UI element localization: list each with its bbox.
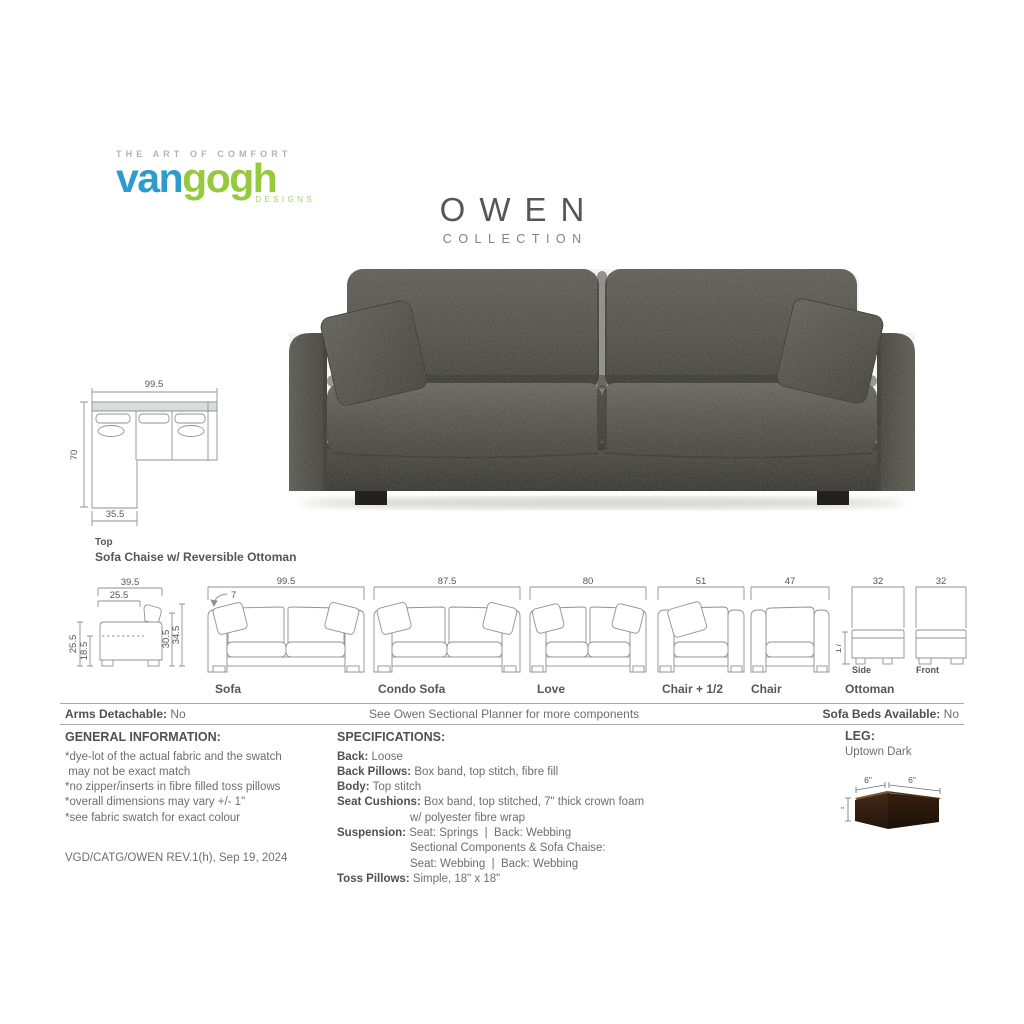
leg-heading: LEG: xyxy=(845,729,975,743)
sofa-leg xyxy=(817,491,849,505)
spec-row: Suspension: Seat: Springs | Back: Webbin… xyxy=(337,826,777,841)
specifications-heading: SPECIFICATIONS: xyxy=(337,729,777,746)
leg-illustration: 6" 6" 3" xyxy=(841,768,975,833)
dimension-label: 6" xyxy=(864,775,872,785)
dimension-label: 99.5 xyxy=(277,576,296,587)
general-info-item: *no zipper/inserts in fibre filled toss … xyxy=(65,780,337,795)
dimension-label: 32 xyxy=(936,576,947,587)
dimension-label: 17 xyxy=(836,643,844,654)
component-name-chair: Chair xyxy=(751,682,782,696)
dim-line xyxy=(92,388,217,402)
side-arm-outline xyxy=(100,622,162,660)
sofa-leg xyxy=(355,491,387,505)
general-info-item: *see fabric swatch for exact colour xyxy=(65,811,337,826)
condo-sofa-drawing: 87.5 xyxy=(371,576,523,681)
side-back-cushion xyxy=(144,605,161,624)
sofa-beds-value: No xyxy=(940,707,959,721)
general-information-heading: GENERAL INFORMATION: xyxy=(65,729,337,746)
dimension-label: 3" xyxy=(841,805,844,815)
general-info-item: *overall dimensions may vary +/- 1" xyxy=(65,795,337,810)
dimension-label: 87.5 xyxy=(438,576,457,587)
dimension-label: 6" xyxy=(908,775,916,785)
arms-detachable: Arms Detachable: No xyxy=(65,707,186,721)
sofa-photo xyxy=(277,257,927,512)
ottoman-side-label: Side xyxy=(852,665,871,675)
fabric-texture xyxy=(277,257,927,512)
dimension-label: 70 xyxy=(69,450,80,461)
leg-name: Uptown Dark xyxy=(845,746,975,758)
info-bar: Arms Detachable: No See Owen Sectional P… xyxy=(60,703,964,725)
chaise-top-view-drawing: 99.5 70 35.5 xyxy=(62,370,262,542)
chair-and-half-drawing: 51 xyxy=(655,576,747,681)
chair-drawing: 47 xyxy=(748,576,832,681)
chaise-view-label: Top xyxy=(95,537,113,548)
dimension-label: 18.5 xyxy=(79,642,90,661)
sofa-beds-label: Sofa Beds Available: xyxy=(822,707,940,721)
dimension-label: 35.5 xyxy=(106,509,125,520)
ottoman-drawing: 32 32 17 Side Front xyxy=(836,576,972,685)
dimension-label: 34.5 xyxy=(171,626,182,645)
component-name-love: Love xyxy=(537,682,565,696)
sofa-beds-available: Sofa Beds Available: No xyxy=(822,707,959,721)
dimension-label: 25.5 xyxy=(110,590,129,601)
sofa-floor-shadow xyxy=(300,497,904,509)
arms-detachable-label: Arms Detachable: xyxy=(65,707,167,721)
side-view-drawing: 39.5 25.5 25.5 18.5 30.5 34.5 xyxy=(66,576,200,681)
sectional-planner-note: See Owen Sectional Planner for more comp… xyxy=(186,707,823,721)
dimension-label: 99.5 xyxy=(145,379,164,390)
revision-note: VGD/CATG/OWEN REV.1(h), Sep 19, 2024 xyxy=(65,852,287,864)
catalog-page: THE ART OF COMFORT vangogh DESIGNS OWEN … xyxy=(0,0,1024,1024)
spec-row: Body: Top stitch xyxy=(337,780,777,795)
dimension-label: 51 xyxy=(696,576,707,587)
ottoman-front-label: Front xyxy=(916,665,939,675)
arms-detachable-value: No xyxy=(167,707,186,721)
spec-row: Seat Cushions: Box band, top stitched, 7… xyxy=(337,795,777,810)
collection-subtitle: COLLECTION xyxy=(0,232,1024,246)
sofa-drawing: 99.5 7 xyxy=(205,576,367,681)
dimension-label: 7 xyxy=(231,590,236,601)
leg-section: LEG: Uptown Dark xyxy=(845,729,975,833)
collection-name: OWEN xyxy=(0,191,1024,229)
spec-row: Back Pillows: Box band, top stitch, fibr… xyxy=(337,765,777,780)
specifications-section: SPECIFICATIONS: Back: Loose Back Pillows… xyxy=(337,729,777,887)
chaise-caption: Sofa Chaise w/ Reversible Ottoman xyxy=(95,550,296,564)
chaise-back-band xyxy=(92,402,217,411)
component-name-ottoman: Ottoman xyxy=(845,682,894,696)
dimension-label: 25.5 xyxy=(68,635,79,654)
spec-row: Back: Loose xyxy=(337,750,777,765)
collection-title: OWEN COLLECTION xyxy=(0,191,1024,246)
sofa-photo-illustration xyxy=(277,257,927,512)
general-information-section: GENERAL INFORMATION: *dye-lot of the act… xyxy=(65,729,337,826)
leg-right-face xyxy=(888,793,939,829)
dimension-label: 39.5 xyxy=(121,577,140,588)
dim-line xyxy=(80,402,88,507)
chaise-outline xyxy=(92,402,217,508)
component-name-sofa: Sofa xyxy=(215,682,241,696)
general-info-item: *dye-lot of the actual fabric and the sw… xyxy=(65,750,337,781)
spec-row-continuation: Sectional Components & Sofa Chaise: xyxy=(410,841,777,856)
dimension-label: 80 xyxy=(583,576,594,587)
component-name-chair-half: Chair + 1/2 xyxy=(662,682,723,696)
spec-row-continuation: Seat: Webbing | Back: Webbing xyxy=(410,857,777,872)
spec-row: Toss Pillows: Simple, 18" x 18" xyxy=(337,872,777,887)
love-seat-drawing: 80 xyxy=(527,576,649,681)
spec-row-continuation: w/ polyester fibre wrap xyxy=(410,811,777,826)
component-name-condo-sofa: Condo Sofa xyxy=(378,682,445,696)
dimension-label: 32 xyxy=(873,576,884,587)
dimension-label: 47 xyxy=(785,576,796,587)
